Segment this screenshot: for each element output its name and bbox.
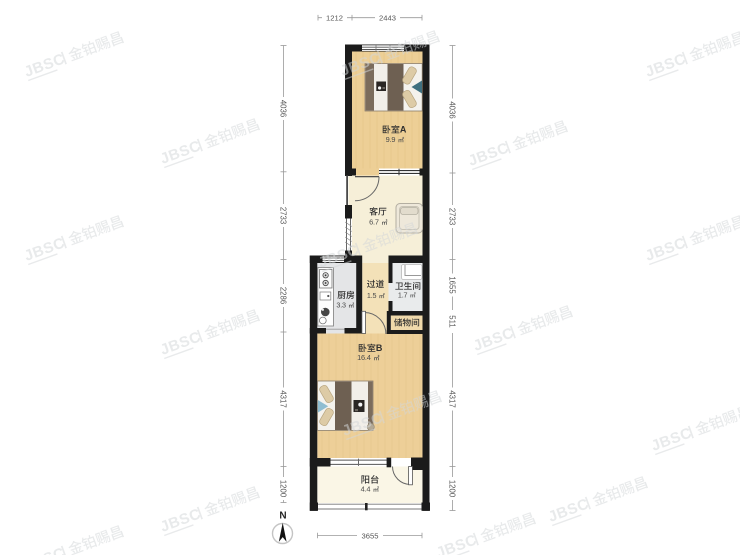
svg-text:B: B — [376, 343, 383, 353]
svg-text:4.4: 4.4 — [361, 485, 371, 494]
svg-text:4036: 4036 — [448, 101, 457, 118]
svg-text:1200: 1200 — [279, 480, 288, 498]
svg-text:A: A — [400, 125, 407, 135]
svg-text:1.5: 1.5 — [367, 291, 377, 300]
svg-text:2443: 2443 — [379, 14, 396, 23]
svg-text:2733: 2733 — [279, 207, 288, 224]
svg-text:1.7: 1.7 — [398, 290, 408, 299]
svg-text:N: N — [279, 511, 286, 522]
svg-text:1200: 1200 — [448, 480, 457, 498]
svg-text:2286: 2286 — [279, 287, 288, 304]
svg-text:511: 511 — [448, 315, 457, 327]
svg-text:4036: 4036 — [279, 100, 288, 117]
svg-text:4317: 4317 — [448, 390, 457, 407]
svg-text:2733: 2733 — [448, 208, 457, 225]
svg-text:3.3: 3.3 — [336, 301, 346, 310]
svg-text:9.9: 9.9 — [386, 135, 396, 144]
svg-text:6.7: 6.7 — [369, 218, 379, 227]
svg-text:1212: 1212 — [326, 14, 343, 23]
svg-text:1655: 1655 — [448, 276, 457, 294]
svg-text:16.4: 16.4 — [357, 353, 371, 362]
svg-text:3655: 3655 — [362, 531, 379, 540]
svg-text:4317: 4317 — [279, 390, 288, 407]
